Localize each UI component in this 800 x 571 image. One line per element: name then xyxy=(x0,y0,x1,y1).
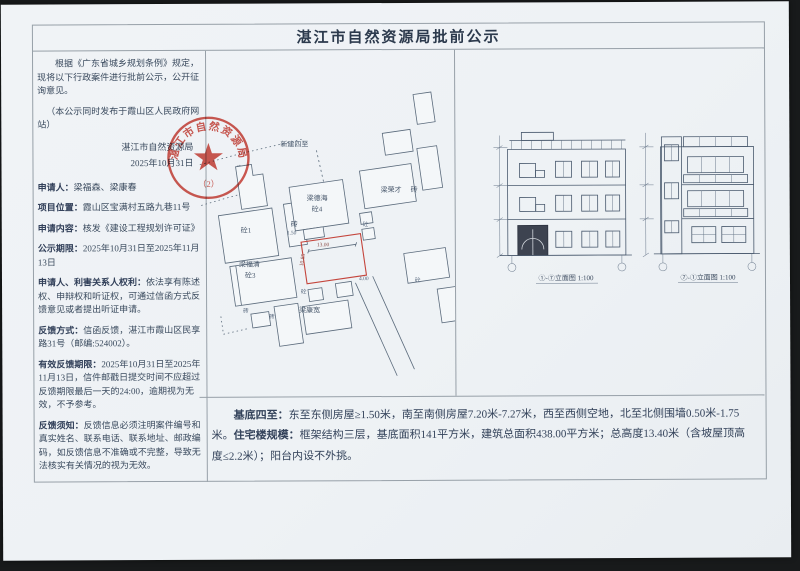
bldg-label-zhuan-2: 砖 xyxy=(411,185,418,194)
bldg-label-liangdehai: 梁德海 xyxy=(307,193,328,202)
bldg-label-tong3: 砼3 xyxy=(245,271,256,280)
bldg-label-zhuan-1: 砖 xyxy=(291,219,298,228)
bldg-label-liangrongcai: 梁荣才 xyxy=(381,185,402,194)
side-elevation-caption: ⑦-①立面图 1:100 xyxy=(680,273,736,282)
bldg-label-tong4: 砼4 xyxy=(312,204,323,213)
signature-date: 2025年10月31日 xyxy=(37,155,193,172)
bldg-label-tong-s3: 砼 xyxy=(415,276,421,284)
project-summary: 基底四至：东至东侧房屋≥1.50米，南至南侧房屋7.20米-7.27米，西至西侧… xyxy=(200,394,765,479)
intro-paragraph: 根据《广东省城乡规划条例》规定，现将以下行政案件进行批前公示，公开征询意见。 xyxy=(37,57,201,98)
scanned-notice-page: 湛江市自然资源局批前公示 根据《广东省城乡规划条例》规定，现将以下行政案件进行批… xyxy=(1,1,791,560)
field-feedback-window: 有效反馈期限：2025年10月31日至2025年11月13日，信件邮戳日提交时间… xyxy=(38,358,202,413)
field-applicant: 申请人：梁福森、梁康春 xyxy=(38,181,202,195)
bldg-label-tong1: 砼1 xyxy=(241,226,252,235)
intro-note: （本公示同时发布于霞山区人民政府网站） xyxy=(37,104,201,132)
signature-block: 湛江市自然资源局 2025年10月31日 xyxy=(37,138,201,171)
field-feedback-method: 反馈方式：信函反馈，湛江市霞山区民享路31号（邮编:524002）。 xyxy=(38,324,202,352)
signature-org: 湛江市自然资源局 xyxy=(37,138,193,155)
summary-label-scale: 住宅楼规模： xyxy=(234,430,300,442)
bldg-label-tong-s1: 砼 xyxy=(301,287,307,295)
site-plan-drawing: 新建四至 空地 xyxy=(198,50,456,397)
parcel-dim-side1: 1.50 xyxy=(287,230,297,236)
bldg-label-tong-s2: 砼 xyxy=(363,220,369,228)
plan-area-label: 新建四至 xyxy=(280,139,308,148)
notice-text-column: 根据《广东省城乡规划条例》规定，现将以下行政案件进行批前公示，公开征询意见。 （… xyxy=(33,51,208,483)
front-elevation: ①-⑦立面图 1:100 xyxy=(493,132,632,284)
field-rights: 申请人、利害关系人权利：依法享有陈述权、申辩权和听证权，可通过信函方式反馈意见或… xyxy=(38,276,202,317)
side-elevation: ⑦-①立面图 1:100 xyxy=(639,132,760,283)
field-location: 项目位置：霞山区宝满村五路九巷11号 xyxy=(38,201,202,215)
elevation-drawings: ①-⑦立面图 1:100 xyxy=(455,48,765,395)
site-plan-panel: 新建四至 空地 xyxy=(198,50,457,397)
elevation-panel: ①-⑦立面图 1:100 xyxy=(455,48,765,395)
bldg-label-liangkangkuan: 梁康宽 xyxy=(299,305,320,314)
parcel-dim-width: 13.00 xyxy=(317,242,330,248)
page-title: 湛江市自然资源局批前公示 xyxy=(33,22,764,51)
front-elevation-caption: ①-⑦立面图 1:100 xyxy=(538,273,594,282)
field-period: 公示期限：2025年10月31日至2025年11月13日 xyxy=(38,242,202,270)
bldg-label-liangfuqing: 梁福清 xyxy=(239,260,260,269)
parcel-dim-side2: 4.00 xyxy=(359,276,369,282)
field-feedback-notice: 反馈须知：反馈信息必须注明案件编号和真实姓名、联系电话、联系地址、邮政编码，如反… xyxy=(39,419,203,474)
bldg-label-zhuan-s1: 砖 xyxy=(243,307,249,315)
summary-label-boundaries: 基底四至： xyxy=(234,409,289,421)
notice-table: 湛江市自然资源局批前公示 根据《广东省城乡规划条例》规定，现将以下行政案件进行批… xyxy=(32,21,767,482)
parcel-dim-depth: 10.85 xyxy=(299,253,307,266)
bldg-label-zhuan-s2: 砖 xyxy=(269,313,275,321)
field-content: 申请内容：核发《建设工程规划许可证》 xyxy=(38,222,202,236)
